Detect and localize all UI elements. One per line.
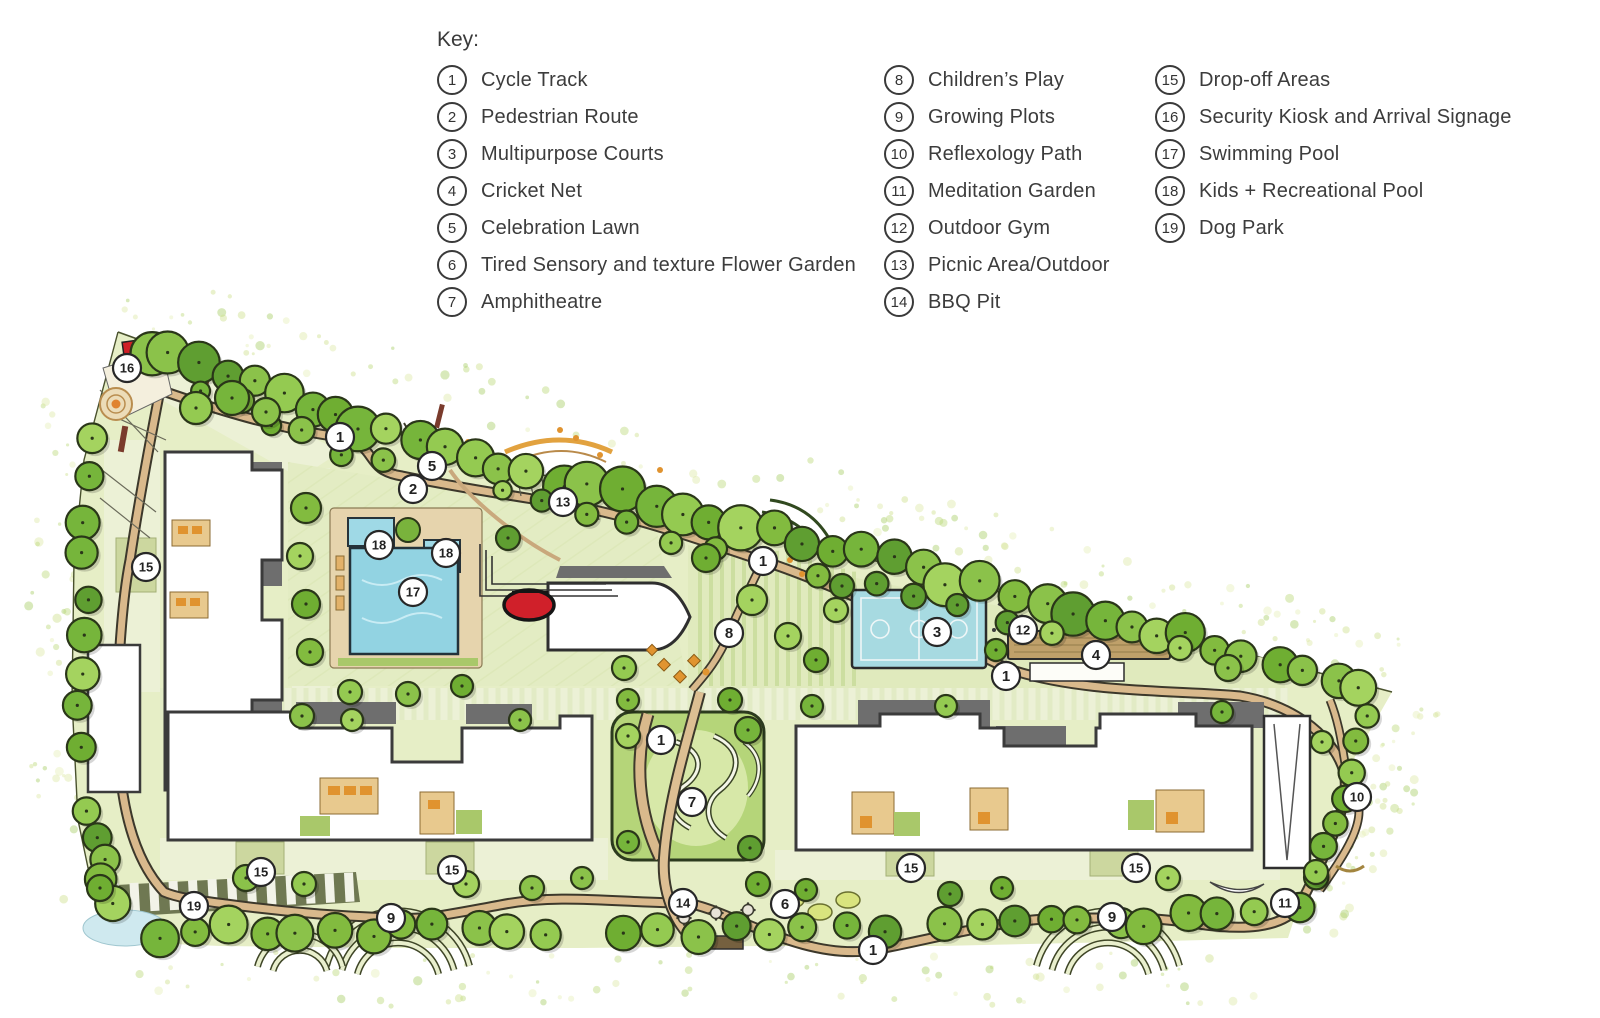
- map-marker-1: 1: [859, 936, 887, 964]
- svg-text:1: 1: [336, 429, 344, 446]
- map-marker-4: 4: [1082, 641, 1110, 669]
- svg-text:15: 15: [904, 861, 918, 876]
- svg-text:13: 13: [556, 495, 570, 510]
- svg-text:3: 3: [933, 624, 941, 641]
- reflexology-path: [1264, 716, 1310, 868]
- svg-text:18: 18: [439, 546, 453, 561]
- svg-text:17: 17: [406, 585, 420, 600]
- svg-text:16: 16: [120, 361, 134, 376]
- map-marker-12: 12: [1009, 616, 1037, 644]
- map-marker-7: 7: [678, 788, 706, 816]
- map-marker-1: 1: [647, 726, 675, 754]
- svg-text:1: 1: [869, 942, 877, 959]
- svg-text:10: 10: [1350, 790, 1364, 805]
- map-marker-11: 11: [1271, 889, 1299, 917]
- map-marker-14: 14: [669, 889, 697, 917]
- map-marker-8: 8: [715, 619, 743, 647]
- svg-text:9: 9: [1108, 909, 1116, 926]
- svg-text:1: 1: [1002, 668, 1010, 685]
- map-marker-1: 1: [326, 423, 354, 451]
- svg-text:7: 7: [688, 794, 696, 811]
- svg-text:15: 15: [139, 560, 153, 575]
- map-marker-18: 18: [365, 531, 393, 559]
- svg-text:6: 6: [781, 896, 789, 913]
- arrival-signage-dot: [112, 400, 121, 409]
- svg-text:15: 15: [445, 863, 459, 878]
- map-marker-2: 2: [399, 475, 427, 503]
- map-marker-10: 10: [1343, 783, 1371, 811]
- map-marker-13: 13: [549, 488, 577, 516]
- map-marker-16: 16: [113, 354, 141, 382]
- map-marker-15: 15: [897, 854, 925, 882]
- svg-text:4: 4: [1092, 647, 1101, 664]
- site-plan-map: 1615213181817151831241171015151991461151…: [0, 0, 1600, 1018]
- map-marker-19: 19: [180, 892, 208, 920]
- map-marker-5: 5: [418, 452, 446, 480]
- map-marker-15: 15: [132, 553, 160, 581]
- svg-text:19: 19: [187, 899, 201, 914]
- svg-text:14: 14: [676, 896, 691, 911]
- red-feature: [504, 590, 554, 620]
- map-marker-1: 1: [749, 547, 777, 575]
- svg-text:11: 11: [1278, 896, 1292, 911]
- map-marker-9: 9: [1098, 903, 1126, 931]
- svg-text:1: 1: [759, 553, 767, 570]
- svg-text:12: 12: [1016, 623, 1030, 638]
- svg-text:5: 5: [428, 458, 436, 475]
- svg-text:15: 15: [254, 865, 268, 880]
- svg-text:1: 1: [657, 732, 665, 749]
- svg-text:18: 18: [372, 538, 386, 553]
- site-plan-page: Key: 1Cycle Track2Pedestrian Route3Multi…: [0, 0, 1600, 1018]
- map-marker-9: 9: [377, 904, 405, 932]
- svg-text:15: 15: [1129, 861, 1143, 876]
- map-marker-1: 1: [992, 662, 1020, 690]
- svg-text:2: 2: [409, 481, 417, 498]
- map-marker-3: 3: [923, 618, 951, 646]
- map-marker-15: 15: [1122, 854, 1150, 882]
- map-marker-6: 6: [771, 890, 799, 918]
- map-marker-17: 17: [399, 578, 427, 606]
- map-marker-15: 15: [247, 858, 275, 886]
- svg-text:8: 8: [725, 625, 733, 642]
- map-marker-18: 18: [432, 539, 460, 567]
- svg-text:9: 9: [387, 910, 395, 927]
- map-marker-15: 15: [438, 856, 466, 884]
